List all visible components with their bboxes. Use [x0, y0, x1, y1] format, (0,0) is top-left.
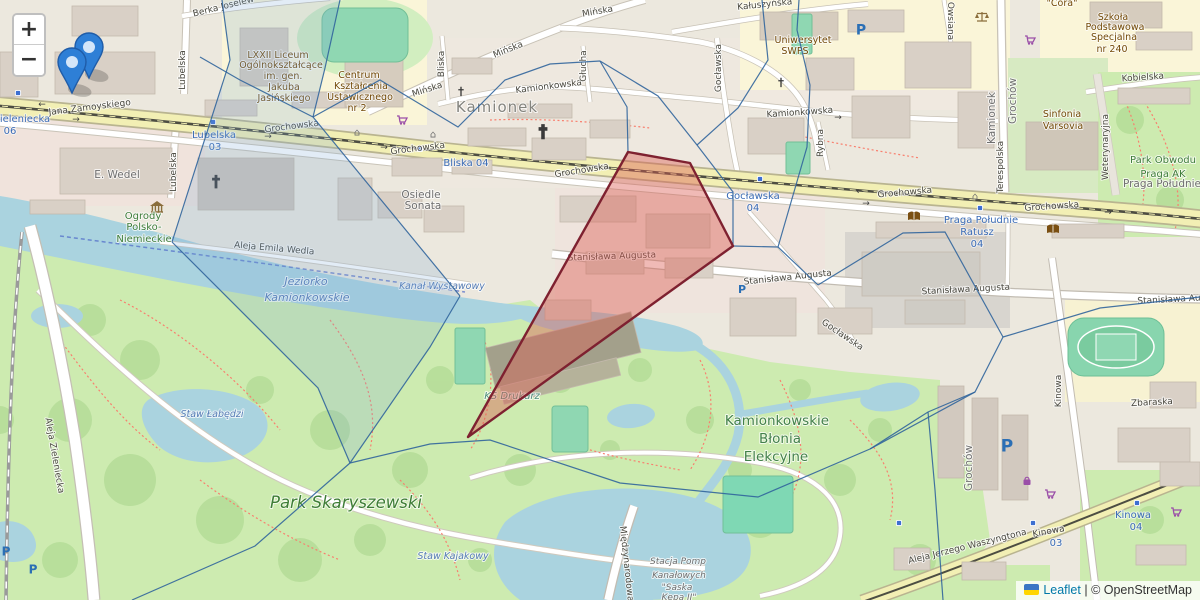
map-label: Gocławska [726, 191, 779, 202]
map-label: Lubelska [178, 50, 188, 90]
map-label: Park Obwodu [1130, 155, 1196, 166]
openstreetmap-link[interactable]: © OpenStreetMap [1091, 583, 1192, 597]
map-label: Ogrody [125, 211, 162, 222]
map-label: nr 240 [1096, 44, 1127, 55]
svg-text:→: → [380, 143, 388, 153]
house-icon: ⌂ [972, 192, 978, 203]
map-label: Uniwersytet [775, 35, 832, 46]
map-label: Owsiana [945, 2, 955, 40]
svg-text:←: ← [856, 187, 864, 197]
map-label: 03 [1050, 538, 1063, 549]
house-icon: ⌂ [354, 128, 360, 139]
map-label: Grochów [1007, 78, 1019, 124]
svg-text:⌂: ⌂ [430, 130, 436, 141]
zoom-control: + − [12, 13, 46, 77]
arrow-icon: ← [38, 100, 46, 110]
map-label: "Cora" [1047, 0, 1078, 9]
map-label: Kamionkowskie [725, 413, 829, 429]
map-label: Bliska 04 [443, 158, 488, 169]
map-label: "Saska [662, 583, 693, 593]
arrow-icon: → [380, 143, 388, 153]
map-label: Bliska [437, 51, 447, 77]
parking-icon: P [856, 22, 866, 38]
zoom-in-button[interactable]: + [14, 15, 44, 45]
map-label: nr 2 [348, 103, 367, 114]
stop-icon [757, 176, 762, 181]
attribution-bar: Leaflet | © OpenStreetMap [1016, 581, 1200, 600]
map-label: Kamionek [986, 91, 998, 144]
attribution-separator: | [1084, 583, 1087, 597]
map-label: Kinowa [1054, 375, 1064, 408]
map-label: Grochów [963, 445, 975, 491]
leaflet-link[interactable]: Leaflet [1043, 583, 1081, 597]
ukraine-flag-icon [1024, 584, 1039, 595]
arrow-icon: ← [856, 187, 864, 197]
stop-icon [15, 90, 20, 95]
parking-icon: P [29, 563, 38, 577]
svg-text:→: → [834, 113, 842, 123]
map-label: 04 [1130, 522, 1143, 533]
svg-text:→: → [862, 199, 870, 209]
map-label: Staw Kajakowy [417, 551, 489, 562]
svg-text:→: → [72, 115, 80, 125]
map-label: Gocławska [714, 44, 724, 92]
arrow-icon: → [862, 199, 870, 209]
svg-text:P: P [1001, 436, 1013, 456]
parking-icon: P [2, 545, 11, 559]
map-label: Park Skaryszewski [270, 493, 422, 512]
map-label: Ustawicznego [327, 92, 393, 103]
svg-text:←: ← [38, 100, 46, 110]
map-label: Kanałowych [652, 571, 706, 581]
map-label: E. Wedel [94, 169, 140, 181]
map-label: Terespolska [996, 141, 1006, 194]
zoom-out-button[interactable]: − [14, 45, 44, 75]
arrow-icon: → [72, 115, 80, 125]
svg-text:P: P [856, 22, 866, 38]
map-label: Niemieckie [116, 234, 171, 245]
map-label: Elekcyjne [744, 449, 808, 465]
basemap: PPPPP←→→→←→→→⌂⌂⌂ Jana ZamoyskiegoGrochow… [0, 0, 1200, 600]
stop-icon [1030, 520, 1035, 525]
stadium [1068, 318, 1164, 376]
arrow-icon: → [834, 113, 842, 123]
map-label: Praga AK [1140, 169, 1186, 180]
map-label: Błonia [759, 431, 801, 447]
map-label: Specjalna [1091, 32, 1137, 43]
map-label: 04 [747, 203, 760, 214]
svg-text:⌂: ⌂ [972, 192, 978, 203]
map-label: Praga Południe [944, 215, 1018, 226]
map-label: Ratusz [960, 227, 994, 238]
map-label: ieleniecka [0, 114, 50, 125]
map-label: Kamionek [456, 98, 538, 116]
parking-icon: P [1001, 436, 1013, 456]
stop-icon [896, 520, 901, 525]
map-label: 06 [4, 126, 17, 137]
stop-icon [1134, 500, 1139, 505]
arrow-icon: → [1104, 208, 1112, 218]
map-label: Lubelska [169, 152, 179, 192]
map-label: Kinowa [1115, 510, 1151, 521]
svg-text:P: P [2, 545, 11, 559]
stop-icon [977, 205, 982, 210]
map-label: Centrum [338, 70, 379, 81]
svg-text:→: → [1104, 208, 1112, 218]
map-label: SWPS [781, 46, 808, 57]
svg-text:P: P [29, 563, 38, 577]
map-label: Polsko- [126, 222, 162, 233]
map-label: Sonata [405, 200, 442, 212]
map-label: Stacja Pomp [650, 557, 706, 567]
map-label: Głucha [579, 50, 589, 81]
map-label: Weterynaryjna [1101, 114, 1111, 180]
map-label: Sinfonia [1043, 109, 1081, 120]
leaflet-map[interactable]: PPPPP←→→→←→→→⌂⌂⌂ Jana ZamoyskiegoGrochow… [0, 0, 1200, 600]
map-label: Kępa II" [662, 593, 697, 600]
map-label: Staw Łabędzi [180, 409, 243, 420]
map-label: Varsovia [1043, 121, 1083, 132]
map-label: 04 [971, 239, 984, 250]
map-label: Rybna [816, 129, 826, 157]
svg-text:⌂: ⌂ [354, 128, 360, 139]
house-icon: ⌂ [430, 130, 436, 141]
